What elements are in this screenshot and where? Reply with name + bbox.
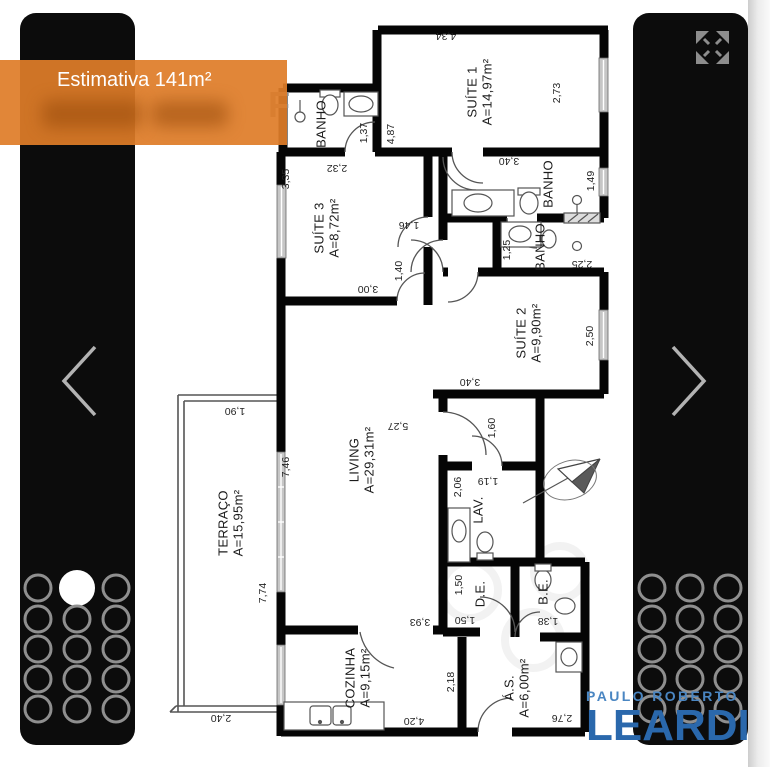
gallery-dot[interactable]: [102, 635, 131, 664]
gallery-dot[interactable]: [676, 605, 705, 634]
agency-logo-line2: LEARDI: [586, 704, 750, 748]
gallery-dot[interactable]: [102, 665, 131, 694]
gallery-dot[interactable]: [102, 574, 131, 603]
gallery-dot[interactable]: [102, 695, 131, 724]
redacted-text: [42, 100, 142, 128]
gallery-dot[interactable]: [24, 665, 53, 694]
gallery-dot[interactable]: [714, 635, 743, 664]
gallery-dot[interactable]: [714, 605, 743, 634]
gallery-dot[interactable]: [676, 574, 705, 603]
gallery-dot[interactable]: [63, 665, 92, 694]
gallery-dot[interactable]: [63, 695, 92, 724]
gallery-dot[interactable]: [24, 605, 53, 634]
gallery-dot[interactable]: [676, 635, 705, 664]
redacted-text: [152, 101, 228, 127]
estimate-label: Estimativa 141m²: [57, 69, 212, 92]
gallery-dot[interactable]: [24, 695, 53, 724]
gallery-dot[interactable]: [102, 605, 131, 634]
gallery-dot[interactable]: [638, 635, 667, 664]
gallery-dot[interactable]: [638, 574, 667, 603]
gallery-dot-active[interactable]: [59, 570, 95, 606]
agency-logo: PAULO ROBERTO LEARDI: [586, 689, 750, 748]
gallery-dot[interactable]: [63, 635, 92, 664]
estimate-banner: Estimativa 141m²: [0, 60, 287, 145]
gallery-dot[interactable]: [24, 574, 53, 603]
next-button[interactable]: [668, 343, 710, 419]
gallery-dot[interactable]: [63, 605, 92, 634]
gallery-dot[interactable]: [638, 605, 667, 634]
gallery-dot[interactable]: [24, 635, 53, 664]
prev-button[interactable]: [58, 343, 100, 419]
gallery-dot[interactable]: [714, 574, 743, 603]
fullscreen-button[interactable]: [694, 29, 731, 66]
